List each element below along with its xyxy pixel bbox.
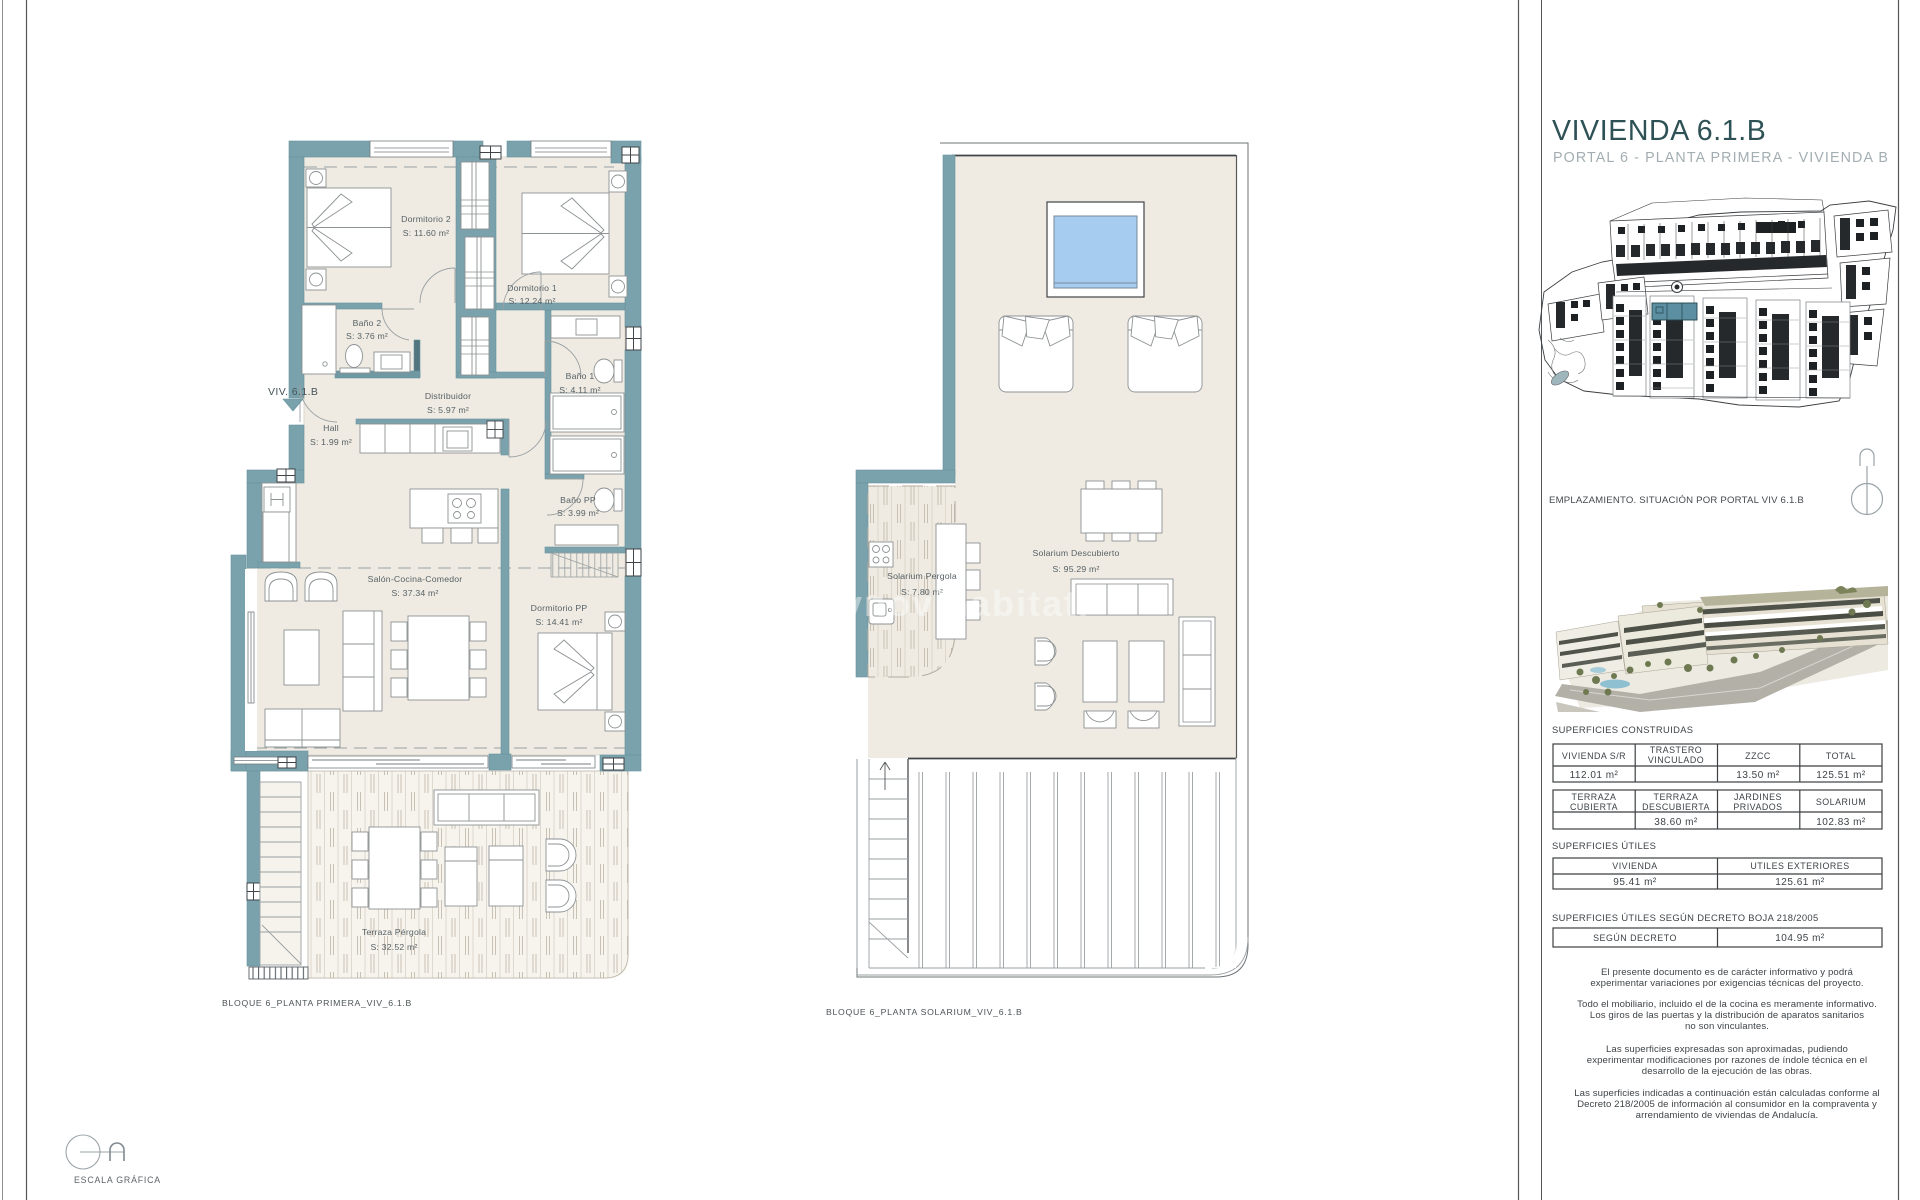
svg-text:SUPERFICIES ÚTILES: SUPERFICIES ÚTILES <box>1552 840 1656 851</box>
svg-text:S: 95.29 m²: S: 95.29 m² <box>1052 564 1099 574</box>
svg-text:95.41 m²: 95.41 m² <box>1613 877 1657 888</box>
svg-text:38.60 m²: 38.60 m² <box>1654 817 1698 828</box>
svg-text:Todo el mobiliario, incluido e: Todo el mobiliario, incluido el de la co… <box>1577 999 1877 1010</box>
svg-text:S: 4.11 m²: S: 4.11 m² <box>559 385 600 395</box>
svg-text:S: 5.97 m²: S: 5.97 m² <box>427 405 469 415</box>
svg-text:Solarium Descubierto: Solarium Descubierto <box>1032 548 1119 558</box>
svg-text:EMPLAZAMIENTO. SITUACIÓN POR P: EMPLAZAMIENTO. SITUACIÓN POR PORTAL VIV … <box>1549 495 1804 506</box>
svg-text:SOLARIUM: SOLARIUM <box>1816 797 1866 807</box>
svg-text:Distribuidor: Distribuidor <box>425 391 471 401</box>
svg-text:SUPERFICIES CONSTRUIDAS: SUPERFICIES CONSTRUIDAS <box>1552 724 1693 735</box>
svg-text:102.83 m²: 102.83 m² <box>1816 817 1866 828</box>
svg-text:BLOQUE 6_PLANTA PRIMERA_VIV_6.: BLOQUE 6_PLANTA PRIMERA_VIV_6.1.B <box>222 998 412 1008</box>
svg-text:ESCALA GRÁFICA: ESCALA GRÁFICA <box>74 1175 161 1185</box>
svg-text:VIVIENDA S/R: VIVIENDA S/R <box>1562 751 1626 761</box>
svg-text:Solarium Pergola: Solarium Pergola <box>887 571 957 581</box>
svg-text:Baño 2: Baño 2 <box>353 318 382 328</box>
svg-text:125.51 m²: 125.51 m² <box>1816 770 1866 781</box>
svg-text:S: 12.24 m²: S: 12.24 m² <box>508 296 555 306</box>
svg-text:JARDINES: JARDINES <box>1734 792 1782 802</box>
svg-text:104.95 m²: 104.95 m² <box>1775 933 1825 944</box>
svg-text:TERRAZA: TERRAZA <box>1654 792 1699 802</box>
svg-text:El presente documento es de ca: El presente documento es de carácter inf… <box>1601 967 1854 978</box>
svg-text:DESCUBIERTA: DESCUBIERTA <box>1642 802 1710 812</box>
svg-text:13.50 m²: 13.50 m² <box>1736 770 1780 781</box>
svg-text:ZZCC: ZZCC <box>1745 751 1771 761</box>
svg-text:Dormitorio PP: Dormitorio PP <box>531 603 588 613</box>
svg-text:TERRAZA: TERRAZA <box>1572 792 1617 802</box>
svg-text:wvnovihabitat.: wvnovihabitat. <box>811 583 1090 624</box>
svg-text:Los giros de las puertas y la: Los giros de las puertas y la distribuci… <box>1590 1010 1864 1021</box>
svg-text:112.01 m²: 112.01 m² <box>1570 770 1619 781</box>
svg-text:VIVIENDA 6.1.B: VIVIENDA 6.1.B <box>1552 115 1766 147</box>
svg-text:S: 32.52 m²: S: 32.52 m² <box>370 942 417 952</box>
svg-text:S: 11.60 m²: S: 11.60 m² <box>403 228 449 238</box>
svg-text:S: 3.99 m²: S: 3.99 m² <box>557 508 599 518</box>
svg-text:S: 14.41 m²: S: 14.41 m² <box>535 617 582 627</box>
svg-text:desarrollo de la ejecución de: desarrollo de la ejecución de las obras. <box>1642 1066 1812 1077</box>
svg-text:experimentar modificaciones po: experimentar modificaciones por razones … <box>1587 1055 1867 1066</box>
svg-text:Dormitorio 2: Dormitorio 2 <box>401 214 451 224</box>
svg-text:VIVIENDA: VIVIENDA <box>1612 861 1657 871</box>
svg-text:PRIVADOS: PRIVADOS <box>1733 802 1782 812</box>
svg-text:Decreto 218/2005 de informaci: Decreto 218/2005 de información al consu… <box>1577 1099 1877 1110</box>
svg-text:S: 37.34 m²: S: 37.34 m² <box>391 588 438 598</box>
svg-text:PORTAL 6 - PLANTA PRIMERA - VI: PORTAL 6 - PLANTA PRIMERA - VIVIENDA B <box>1553 150 1889 166</box>
svg-text:CUBIERTA: CUBIERTA <box>1570 802 1618 812</box>
svg-text:SEGÚN DECRETO: SEGÚN DECRETO <box>1593 933 1677 943</box>
svg-text:experimentar variaciones por e: experimentar variaciones por exigencias … <box>1590 978 1863 989</box>
svg-text:UTILES EXTERIORES: UTILES EXTERIORES <box>1750 861 1849 871</box>
svg-text:Las superficies indicadas a co: Las superficies indicadas a continuación… <box>1574 1088 1880 1099</box>
svg-text:Salón-Cocina-Comedor: Salón-Cocina-Comedor <box>368 574 463 584</box>
svg-text:S: 3.76 m²: S: 3.76 m² <box>346 331 388 341</box>
svg-text:Baño 1: Baño 1 <box>566 371 595 381</box>
svg-text:Las superficies expresadas son: Las superficies expresadas son aproximad… <box>1606 1044 1848 1055</box>
svg-text:TRASTERO: TRASTERO <box>1650 745 1702 755</box>
svg-text:Dormitorio 1: Dormitorio 1 <box>507 283 557 293</box>
svg-text:Baño PP: Baño PP <box>560 495 596 505</box>
svg-text:Hall: Hall <box>323 423 339 433</box>
svg-text:Terraza Pérgola: Terraza Pérgola <box>362 927 426 937</box>
svg-text:VIV. 6.1.B: VIV. 6.1.B <box>268 386 318 398</box>
svg-text:SUPERFICIES ÚTILES SEGÚN DECRE: SUPERFICIES ÚTILES SEGÚN DECRETO BOJA 21… <box>1552 912 1819 923</box>
svg-text:125.61 m²: 125.61 m² <box>1775 877 1825 888</box>
svg-text:arrendamiento de viviendas de: arrendamiento de viviendas de Andalucía. <box>1636 1110 1819 1121</box>
svg-text:S: 1.99 m²: S: 1.99 m² <box>310 437 352 447</box>
svg-text:no son vinculantes.: no son vinculantes. <box>1685 1021 1769 1032</box>
svg-text:BLOQUE 6_PLANTA SOLARIUM_VIV_6: BLOQUE 6_PLANTA SOLARIUM_VIV_6.1.B <box>826 1007 1023 1017</box>
svg-text:VINCULADO: VINCULADO <box>1648 755 1704 765</box>
svg-text:TOTAL: TOTAL <box>1826 751 1856 761</box>
